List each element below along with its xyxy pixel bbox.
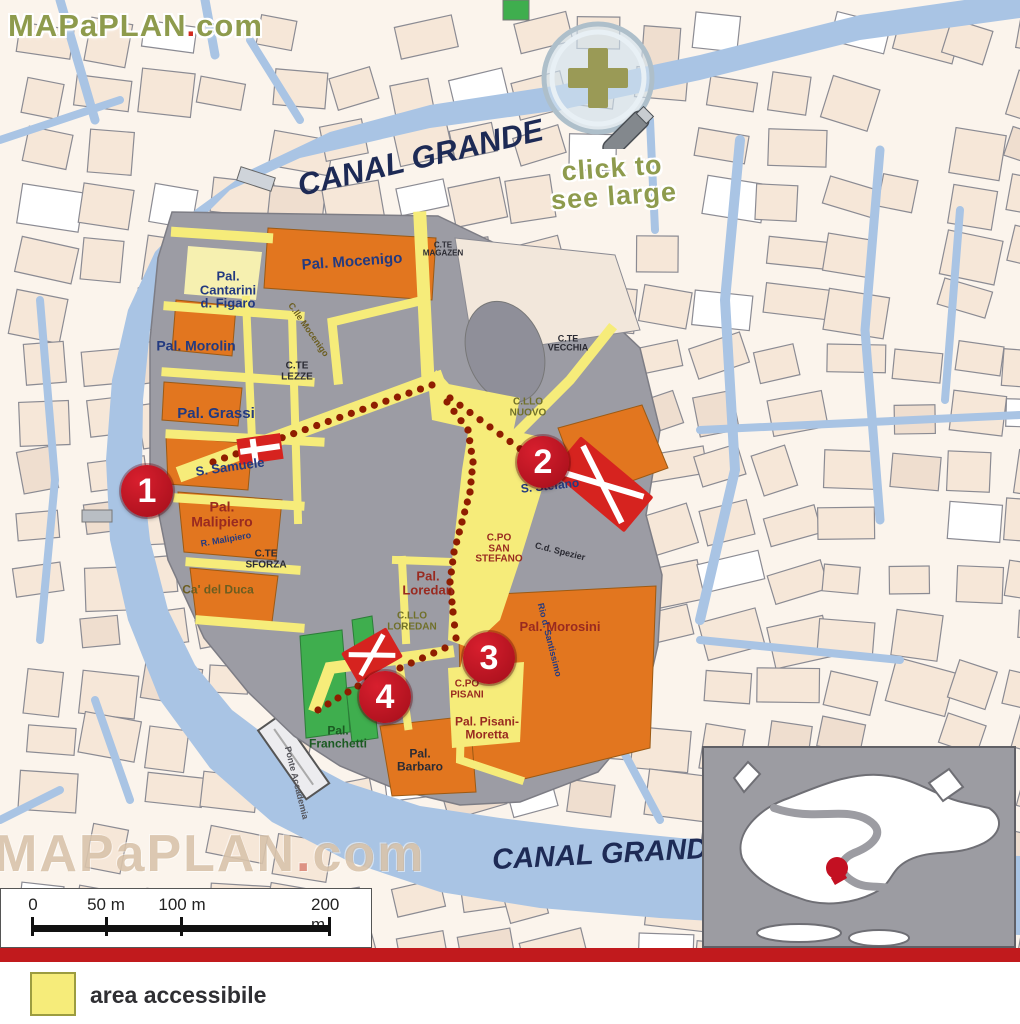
route-dot bbox=[453, 538, 460, 545]
route-dot bbox=[313, 422, 320, 429]
route-dot bbox=[446, 578, 453, 585]
route-dot bbox=[450, 408, 457, 415]
route-dot bbox=[456, 528, 463, 535]
route-dot bbox=[466, 488, 473, 495]
scale-tick-mark bbox=[328, 917, 331, 936]
route-dot bbox=[496, 431, 503, 438]
route-dot bbox=[314, 706, 321, 713]
poi-marker-1[interactable]: 1 bbox=[121, 465, 173, 517]
brand-tld: com bbox=[312, 825, 425, 883]
route-dot bbox=[334, 694, 341, 701]
poi-marker-3[interactable]: 3 bbox=[463, 632, 515, 684]
brand-tld: com bbox=[196, 8, 263, 43]
brand-name: MAPaPLAN bbox=[0, 825, 296, 883]
route-dot bbox=[336, 414, 343, 421]
zoom-preview-button[interactable]: click to see large bbox=[528, 14, 698, 211]
brand-dot: . bbox=[296, 825, 312, 883]
route-dot bbox=[396, 664, 403, 671]
route-dot bbox=[506, 438, 513, 445]
scale-tick-50: 50 m bbox=[87, 895, 125, 915]
route-dot bbox=[449, 558, 456, 565]
route-dot bbox=[458, 518, 465, 525]
route-dot bbox=[344, 688, 351, 695]
route-dot bbox=[451, 621, 458, 628]
watermark-top: MAPaPLAN.com bbox=[8, 8, 263, 44]
route-dot bbox=[302, 426, 309, 433]
route-dot bbox=[450, 548, 457, 555]
route-dot bbox=[441, 644, 448, 651]
route-dot bbox=[448, 598, 455, 605]
route-dot bbox=[486, 423, 493, 430]
route-dot bbox=[467, 478, 474, 485]
route-dot bbox=[417, 385, 424, 392]
route-dot bbox=[456, 402, 463, 409]
route-dot bbox=[324, 700, 331, 707]
route-dot bbox=[468, 468, 475, 475]
route-dot bbox=[447, 588, 454, 595]
route-dot bbox=[476, 416, 483, 423]
route-dot bbox=[469, 458, 476, 465]
route-dot bbox=[419, 654, 426, 661]
poi-marker-2[interactable]: 2 bbox=[517, 436, 569, 488]
route-dot bbox=[408, 659, 415, 666]
scale-bar: 0 50 m 100 m 200 m bbox=[0, 888, 372, 948]
scale-tick-0: 0 bbox=[28, 895, 37, 915]
route-dot bbox=[448, 568, 455, 575]
brand-name: MAPaPLAN bbox=[8, 8, 187, 43]
venice-map-page: Pal. MocenigoPal. Cantarini d. FigaroPal… bbox=[0, 0, 1020, 1024]
route-dot bbox=[464, 426, 471, 433]
route-dot bbox=[430, 649, 437, 656]
route-dot bbox=[221, 454, 228, 461]
route-dot bbox=[325, 418, 332, 425]
route-dot bbox=[466, 437, 473, 444]
route-dot bbox=[359, 406, 366, 413]
scale-tick-mark bbox=[31, 917, 34, 936]
route-dot bbox=[371, 402, 378, 409]
route-dot bbox=[394, 394, 401, 401]
route-dot bbox=[428, 381, 435, 388]
route-dot bbox=[457, 417, 464, 424]
scale-tick-mark bbox=[180, 917, 183, 936]
scale-tick-mark bbox=[105, 917, 108, 936]
route-dot bbox=[461, 508, 468, 515]
route-dot bbox=[466, 409, 473, 416]
route-dot bbox=[405, 390, 412, 397]
route-dot bbox=[382, 398, 389, 405]
route-dot bbox=[290, 430, 297, 437]
route-dot bbox=[348, 410, 355, 417]
route-dot bbox=[464, 498, 471, 505]
scale-tick-100: 100 m bbox=[158, 895, 205, 915]
divider-band bbox=[0, 948, 1020, 962]
route-dot bbox=[452, 634, 459, 641]
accessible-area-swatch bbox=[30, 972, 76, 1016]
watermark-bottom: MAPaPLAN.com bbox=[0, 824, 425, 884]
route-dot bbox=[449, 608, 456, 615]
legend: area accessibile bbox=[0, 962, 1020, 1024]
brand-dot: . bbox=[187, 8, 197, 43]
route-dot bbox=[468, 448, 475, 455]
magnifier-icon bbox=[528, 14, 698, 149]
route-dot bbox=[209, 458, 216, 465]
poi-marker-4[interactable]: 4 bbox=[359, 671, 411, 723]
venice-inset-map bbox=[702, 746, 1016, 948]
route-dot bbox=[443, 398, 450, 405]
legend-label: area accessibile bbox=[90, 982, 266, 1009]
